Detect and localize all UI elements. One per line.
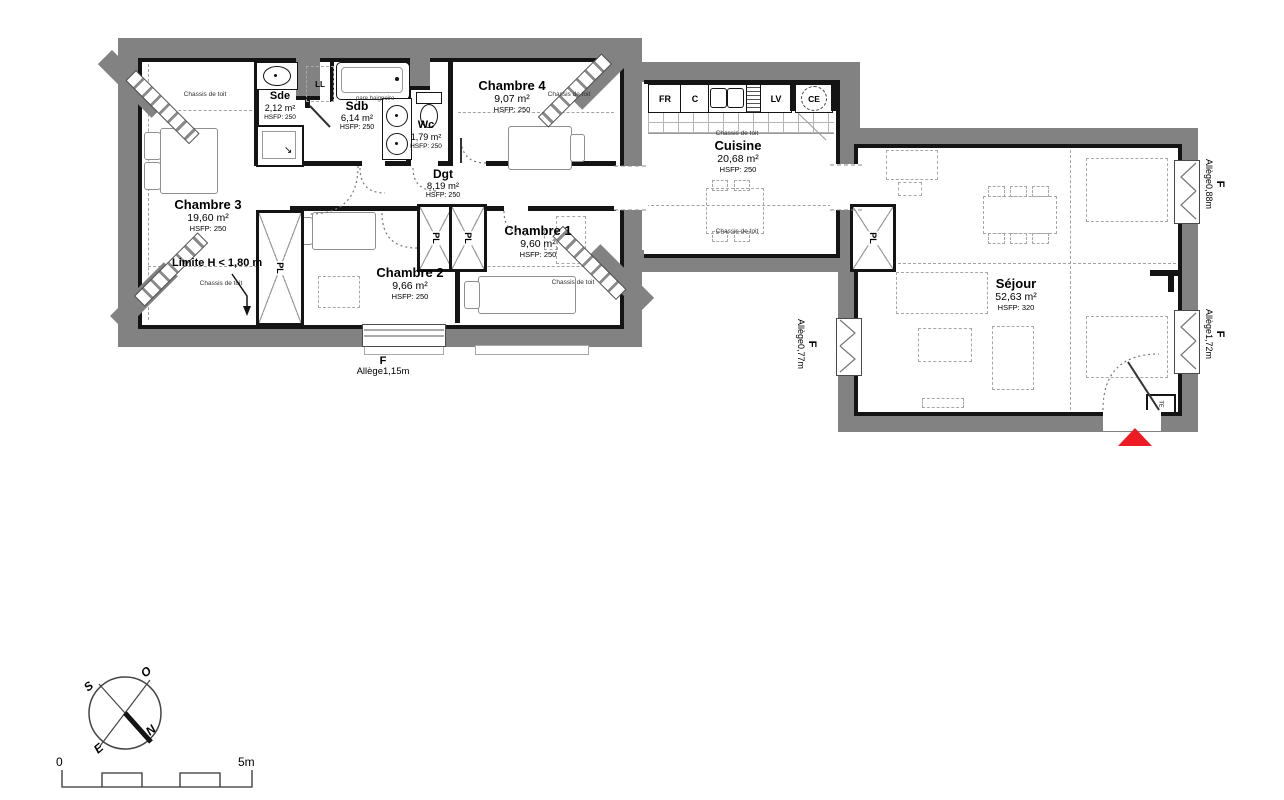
closet-pl: PL (449, 204, 487, 272)
entrance-opening (1103, 410, 1161, 431)
window-east-bottom (1174, 310, 1200, 374)
window-type: F (1214, 152, 1226, 216)
room-name: Chambre 1 (490, 223, 586, 238)
scale-end: 5m (238, 755, 255, 769)
room-name: Séjour (970, 276, 1062, 291)
window-sill-height: Allège0,77m (796, 312, 806, 376)
room-area: 2,12 m² (250, 103, 310, 114)
room-label-wc: Wc 1,79 m² HSFP: 250 (402, 119, 450, 150)
roof-line (858, 263, 1176, 264)
bed (508, 126, 572, 170)
chair (1032, 186, 1049, 197)
washing-machine: LL (306, 66, 334, 102)
desk (318, 276, 360, 308)
washbasin-drain (274, 74, 277, 77)
closet-label: PL (463, 231, 473, 245)
window-west (836, 318, 862, 376)
window-type: F (1214, 302, 1226, 366)
furniture-zone (1086, 158, 1168, 222)
closet-label: PL (431, 231, 441, 245)
sink-basin (727, 88, 744, 108)
chair (712, 180, 728, 191)
room-label-sejour: Séjour 52,63 m² HSFP: 320 (970, 276, 1062, 313)
window-label-east-top: F Allège0,88m (1204, 152, 1226, 216)
roof-line (1070, 150, 1071, 410)
window-sill-height: Allège0,88m (1204, 152, 1214, 216)
armchair (918, 328, 972, 362)
washbasin-drain (395, 114, 398, 117)
appliance-label: LV (761, 85, 791, 112)
room-label-chambre1: Chambre 1 9,60 m² HSFP: 250 (490, 223, 586, 260)
window-sill-height: Allège1,72m (1204, 302, 1214, 366)
chair (1032, 233, 1049, 244)
window-label-south: F Allège1,15m (333, 355, 433, 378)
window-sill-height: Allège1,15m (333, 367, 433, 377)
room-hsfp: HSFP: 250 (156, 225, 260, 234)
compass-o: O (138, 663, 155, 680)
compass-e: E (91, 740, 107, 757)
roof-window-label: Chassis de toit (160, 91, 250, 98)
roof-window-label: Chassis de toit (528, 279, 618, 286)
room-label-chambre2: Chambre 2 9,66 m² HSFP: 250 (362, 265, 458, 302)
washing-machine-label: LL (315, 80, 325, 89)
room-name: Dgt (408, 167, 478, 181)
passage-dgt-cuisine (614, 166, 648, 210)
shower-drain-arrow: ↘ (284, 145, 292, 156)
appliance-label: CE (808, 94, 820, 104)
wall-niche (410, 58, 430, 88)
room-area: 9,60 m² (490, 238, 586, 250)
wall (312, 161, 362, 166)
washbasin-drain (395, 142, 398, 145)
furniture-zone (922, 398, 964, 408)
chair (1010, 186, 1027, 197)
room-hsfp: HSFP: 250 (402, 143, 450, 151)
window-type: F (806, 312, 818, 376)
room-area: 52,63 m² (970, 291, 1062, 303)
room-label-cuisine: Cuisine 20,68 m² HSFP: 250 (694, 138, 782, 175)
appliance-fridge: FR (648, 84, 682, 113)
room-area: 1,79 m² (402, 132, 450, 143)
appliance-label: FR (649, 85, 681, 112)
room-hsfp: HSFP: 250 (408, 192, 478, 200)
wall (438, 161, 453, 166)
desk (886, 150, 938, 180)
wall (410, 86, 430, 90)
room-label-chambre3: Chambre 3 19,60 m² HSFP: 250 (156, 197, 260, 234)
bathtub (336, 62, 410, 100)
room-name: Chambre 2 (362, 265, 458, 280)
closet-label: PL (868, 231, 878, 245)
chair (1010, 233, 1027, 244)
wall (448, 62, 453, 166)
chair (988, 186, 1005, 197)
room-hsfp: HSFP: 250 (362, 293, 458, 302)
chair (988, 233, 1005, 244)
compass-s: S (81, 678, 96, 694)
roof-window-label: Chassis de toit (524, 91, 614, 98)
threshold (475, 345, 589, 355)
roof-window-label: Chassis de toit (176, 280, 266, 287)
room-hsfp: HSFP: 250 (250, 114, 310, 122)
wall (642, 62, 858, 82)
toilet (416, 92, 442, 104)
compass: O S E N (81, 663, 161, 756)
window-label-east-bottom: F Allège1,72m (1204, 302, 1226, 366)
window-label-west: F Allège0,77m (796, 312, 818, 376)
room-area: 19,60 m² (156, 212, 260, 224)
window-east-top (1174, 160, 1200, 224)
pillow (144, 162, 161, 190)
wall (831, 82, 836, 111)
shower: ↘ (256, 125, 304, 167)
room-hsfp: HSFP: 250 (462, 106, 562, 115)
room-name: Sde (250, 90, 310, 103)
washbasin-bowl (263, 66, 291, 86)
wall (528, 206, 616, 211)
room-hsfp: HSFP: 250 (490, 251, 586, 260)
chair (898, 182, 922, 196)
room-label-dgt: Dgt 8,19 m² HSFP: 250 (408, 167, 478, 201)
room-label-sdb: Sdb 6,14 m² HSFP: 250 (326, 99, 388, 133)
electrical-board-label: TE (1158, 400, 1164, 407)
pillow (464, 281, 480, 309)
pillow (144, 132, 161, 160)
room-name: Chambre 3 (156, 197, 260, 212)
wall (292, 206, 417, 211)
pare-baignoire-label: pare baignoire (356, 96, 416, 102)
wall (385, 161, 408, 166)
bathtub-inner (341, 67, 403, 93)
roof-window-label: Chassis de toit (692, 130, 782, 137)
wall (1168, 276, 1174, 292)
window-south (362, 324, 446, 347)
scale-bar: 0 5m (56, 755, 255, 787)
room-hsfp: HSFP: 320 (970, 304, 1062, 313)
appliance-water-heater: CE (795, 84, 833, 113)
room-area: 8,19 m² (408, 181, 478, 192)
room-hsfp: HSFP: 250 (694, 166, 782, 175)
appliance-dishwasher: LV (760, 84, 792, 113)
coffee-table (992, 326, 1034, 390)
sink-basin (710, 88, 727, 108)
furniture-zone (1086, 316, 1168, 378)
compass-n: N (143, 722, 159, 739)
appliance-cooker: C (680, 84, 710, 113)
roof-window-label: Chassis de toit (692, 228, 782, 235)
dining-table (983, 196, 1057, 234)
water-heater-circle: CE (801, 86, 827, 111)
bed (312, 212, 376, 250)
room-area: 6,14 m² (326, 113, 388, 124)
height-limit-label: Limite H < 1,80 m (172, 257, 372, 269)
wall (118, 38, 642, 60)
pillow (570, 134, 585, 162)
room-area: 9,66 m² (362, 280, 458, 292)
room-name: Cuisine (694, 138, 782, 153)
room-area: 20,68 m² (694, 153, 782, 165)
floor-plan: PL PL PL PL FR C LV CE ↘ LL (0, 0, 1284, 800)
scale-start: 0 (56, 755, 63, 769)
appliance-label: C (681, 85, 709, 112)
room-hsfp: HSFP: 250 (326, 124, 388, 132)
room-name: Wc (402, 119, 450, 132)
washbasin (256, 62, 298, 90)
bathtub-drain (395, 77, 399, 81)
chair (734, 180, 750, 191)
closet-pl: PL (850, 204, 896, 272)
room-label-sde: Sde 2,12 m² HSFP: 250 (250, 90, 310, 121)
wall (790, 82, 795, 111)
